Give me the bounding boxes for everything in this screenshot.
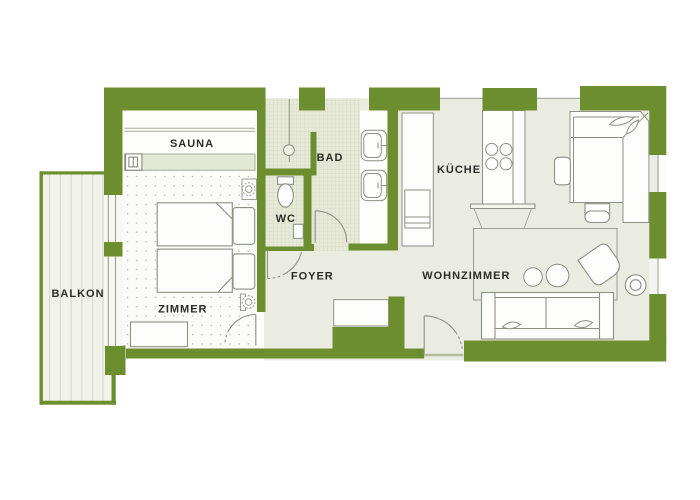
svg-text:BALKON: BALKON [51, 288, 104, 300]
svg-text:KÜCHE: KÜCHE [437, 163, 481, 176]
svg-text:BAD: BAD [317, 152, 344, 164]
svg-text:FOYER: FOYER [291, 270, 334, 282]
svg-text:ZIMMER: ZIMMER [158, 303, 207, 315]
svg-text:WOHNZIMMER: WOHNZIMMER [422, 270, 510, 282]
svg-text:SAUNA: SAUNA [170, 138, 214, 150]
svg-text:WC: WC [276, 213, 296, 225]
